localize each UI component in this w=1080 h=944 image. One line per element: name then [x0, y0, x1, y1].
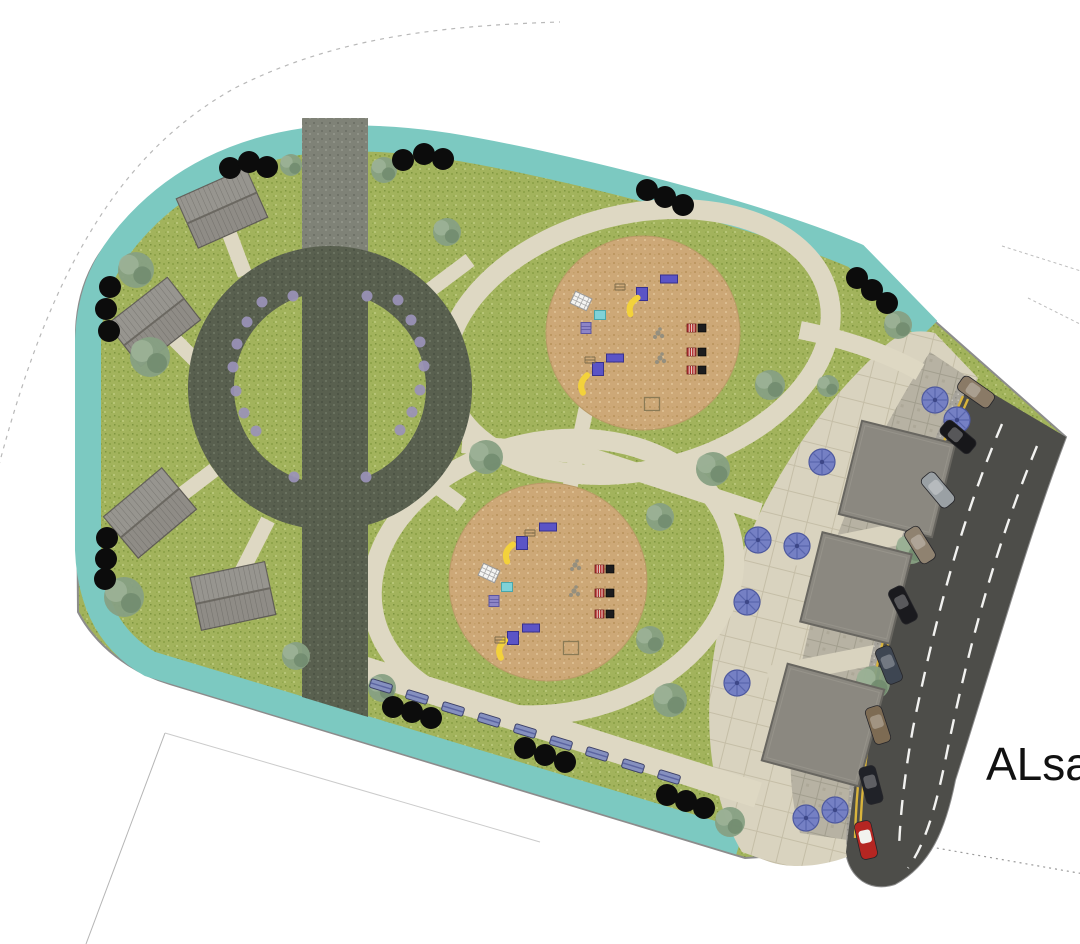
shrub-tree	[884, 311, 912, 339]
purple-shrub-dot	[415, 385, 426, 396]
purple-shrub-dot	[419, 361, 430, 372]
umbrella-pole	[833, 808, 837, 812]
black-tree	[413, 143, 435, 165]
shrub-shadow	[483, 454, 500, 471]
black-tree	[256, 156, 278, 178]
play-structure-rect	[523, 624, 540, 632]
black-tree	[420, 707, 442, 729]
shrub-shadow	[648, 637, 662, 651]
rock	[660, 334, 664, 338]
shrub-tree	[433, 218, 461, 246]
shrub-tree	[715, 807, 745, 837]
play-brect	[540, 523, 557, 531]
umbrella	[793, 805, 819, 831]
purple-shrub-dot	[393, 295, 404, 306]
play-structure-rect	[540, 523, 557, 531]
rock	[572, 562, 577, 567]
shrub-tree	[469, 440, 503, 474]
rock	[662, 359, 666, 363]
purple-shrub-dot	[288, 291, 299, 302]
play-bsq	[593, 363, 604, 376]
black-tree	[94, 568, 116, 590]
parcel-corner-sw-1	[86, 733, 165, 944]
play-brect	[607, 354, 624, 362]
umbrella	[822, 797, 848, 823]
parcel-line-ne-1	[1002, 246, 1080, 272]
black-tree	[693, 797, 715, 819]
play-structure-square	[517, 537, 528, 550]
black-tree	[432, 148, 454, 170]
shrub-shadow	[133, 266, 151, 284]
purple-shrub-dot	[406, 315, 417, 326]
play-purple	[489, 596, 499, 607]
rock	[658, 327, 662, 331]
umbrella	[734, 589, 760, 615]
play-cyan	[595, 311, 606, 320]
black-tree	[219, 157, 241, 179]
rock	[569, 593, 573, 597]
purple-shrub-dot	[407, 407, 418, 418]
purple-shrub-dot	[395, 425, 406, 436]
purple-shrub-dot	[362, 291, 373, 302]
black-tree	[401, 701, 423, 723]
rock	[660, 352, 664, 356]
shrub-shadow	[658, 514, 672, 528]
rock	[574, 585, 578, 589]
umbrella	[809, 449, 835, 475]
shrub-tree	[817, 375, 839, 397]
rock	[571, 588, 576, 593]
black-tree	[672, 194, 694, 216]
black-tree	[514, 737, 536, 759]
play-cyan	[502, 583, 513, 592]
umbrella	[922, 387, 948, 413]
promenade-band-top	[302, 118, 368, 252]
black-tree	[876, 292, 898, 314]
black-tree	[392, 149, 414, 171]
play-structure-rect	[661, 275, 678, 283]
black-tree	[656, 784, 678, 806]
play-cyan-box	[502, 583, 513, 592]
rock	[655, 360, 659, 364]
shrub-tree	[755, 370, 785, 400]
shrub-tree	[696, 452, 730, 486]
umbrella-pole	[955, 418, 959, 422]
play-cyan-box	[595, 311, 606, 320]
rock	[575, 559, 579, 563]
rock	[657, 355, 662, 360]
umbrella-pole	[756, 538, 760, 542]
bench-black	[698, 348, 706, 356]
shrub-shadow	[289, 163, 300, 174]
umbrella	[784, 533, 810, 559]
purple-shrub-dot	[242, 317, 253, 328]
road-continuation-dotted	[925, 846, 1080, 874]
black-tree	[95, 298, 117, 320]
parcel-line-ne-2	[1028, 298, 1080, 326]
bench-black	[606, 565, 614, 573]
play-brect	[661, 275, 678, 283]
play-purple-box	[581, 323, 591, 334]
play-brect	[523, 624, 540, 632]
rock	[570, 567, 574, 571]
bench-black	[606, 610, 614, 618]
shrub-shadow	[768, 382, 783, 397]
purple-shrub-dot	[228, 362, 239, 373]
shrub-shadow	[710, 466, 727, 483]
shrub-shadow	[382, 167, 395, 180]
play-structure-square	[593, 363, 604, 376]
shrub-shadow	[445, 229, 459, 243]
shrub-tree	[118, 252, 154, 288]
bench-black	[606, 589, 614, 597]
playground-sand-circle	[546, 236, 740, 430]
shrub-shadow	[121, 593, 141, 613]
black-tree	[95, 548, 117, 570]
purple-shrub-dot	[361, 472, 372, 483]
play-purple-box	[489, 596, 499, 607]
black-tree	[554, 751, 576, 773]
street-label: ALsah	[986, 738, 1080, 790]
umbrella-pole	[735, 681, 739, 685]
black-tree	[99, 276, 121, 298]
play-bsq	[508, 632, 519, 645]
shrub-shadow	[147, 353, 167, 373]
rock	[653, 335, 657, 339]
purple-shrub-dot	[232, 339, 243, 350]
play-structure-square	[508, 632, 519, 645]
shrub-tree	[280, 154, 302, 176]
shrub-shadow	[826, 384, 837, 395]
umbrella-pole	[804, 816, 808, 820]
black-tree	[98, 320, 120, 342]
site-plan-svg: ALsah	[0, 0, 1080, 944]
shrub-tree	[282, 642, 310, 670]
shrub-tree	[636, 626, 664, 654]
play-structure-rect	[607, 354, 624, 362]
rock	[576, 592, 580, 596]
playground-sand-circle	[449, 483, 647, 681]
purple-shrub-dot	[231, 386, 242, 397]
umbrella-pole	[820, 460, 824, 464]
shrub-shadow	[294, 653, 308, 667]
purple-shrub-dot	[289, 472, 300, 483]
play-purple	[581, 323, 591, 334]
rock	[577, 566, 581, 570]
shrub-shadow	[728, 819, 743, 834]
umbrella	[745, 527, 771, 553]
rock	[655, 330, 660, 335]
umbrella-pole	[745, 600, 749, 604]
umbrella	[724, 670, 750, 696]
purple-shrub-dot	[257, 297, 268, 308]
black-tree	[382, 696, 404, 718]
purple-shrub-dot	[251, 426, 262, 437]
shrub-shadow	[896, 322, 910, 336]
umbrella-pole	[933, 398, 937, 402]
shrub-shadow	[667, 697, 684, 714]
black-tree	[96, 527, 118, 549]
bench-black	[698, 324, 706, 332]
black-tree	[534, 744, 556, 766]
shrub-tree	[130, 337, 170, 377]
shrub-tree	[653, 683, 687, 717]
purple-shrub-dot	[415, 337, 426, 348]
play-bsq	[517, 537, 528, 550]
umbrella-pole	[795, 544, 799, 548]
shrub-tree	[646, 503, 674, 531]
bench-black	[698, 366, 706, 374]
purple-shrub-dot	[239, 408, 250, 419]
